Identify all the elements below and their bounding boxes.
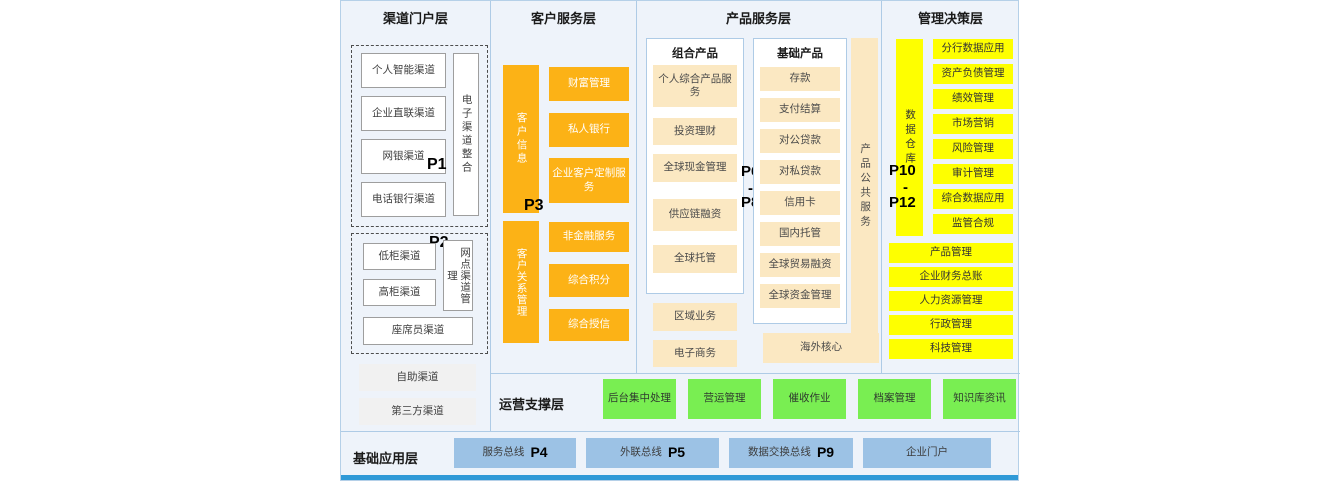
product-box: 国内托管 xyxy=(760,222,840,246)
row-divider xyxy=(341,431,1020,432)
layer-title-operations: 运营支撑层 xyxy=(499,394,589,413)
operations-box: 档案管理 xyxy=(858,379,931,419)
channel-box: 第三方渠道 xyxy=(359,398,476,425)
p-label-dash: - xyxy=(903,180,908,195)
operations-box: 营运管理 xyxy=(688,379,761,419)
layer-title-management: 管理决策层 xyxy=(881,8,1020,27)
product-box: 对公贷款 xyxy=(760,129,840,153)
foundation-box-label: 外联总线 xyxy=(620,446,662,459)
customer-vertical-bar: 客户关系管理 xyxy=(503,221,539,343)
customer-box: 财富管理 xyxy=(549,67,629,101)
management-box: 行政管理 xyxy=(889,315,1013,335)
column-divider xyxy=(490,1,491,431)
product-box: 投资理财 xyxy=(653,118,737,145)
channel-box: 座席员渠道 xyxy=(363,317,473,345)
management-box: 企业财务总账 xyxy=(889,267,1013,287)
channel-box: 低柜渠道 xyxy=(363,243,436,270)
product-box: 海外核心 xyxy=(763,333,879,363)
channel-box: 电话银行渠道 xyxy=(361,182,446,217)
row-divider xyxy=(490,373,1020,374)
product-box: 全球现金管理 xyxy=(653,154,737,182)
layer-title-channel: 渠道门户层 xyxy=(341,8,490,27)
channel-box: 企业直联渠道 xyxy=(361,96,446,131)
product-box: 供应链融资 xyxy=(653,199,737,231)
foundation-box-label: 服务总线 xyxy=(482,446,524,459)
p-label-p4: P4 xyxy=(530,444,547,462)
customer-box: 非金融服务 xyxy=(549,222,629,252)
product-box: 电子商务 xyxy=(653,340,737,367)
bottom-accent-strip xyxy=(341,475,1018,480)
customer-box: 综合授信 xyxy=(549,309,629,341)
product-box: 区域业务 xyxy=(653,303,737,331)
foundation-box: 数据交换总线 P9 xyxy=(729,438,853,468)
customer-vertical-bar: 客户信息 xyxy=(503,65,539,213)
customer-box: 私人银行 xyxy=(549,113,629,147)
foundation-box: 外联总线 P5 xyxy=(586,438,719,468)
management-box: 综合数据应用 xyxy=(933,189,1013,209)
product-box: 全球贸易融资 xyxy=(760,253,840,277)
p-label-p12: P12 xyxy=(889,195,916,210)
operations-box: 知识库资讯 xyxy=(943,379,1016,419)
management-box: 分行数据应用 xyxy=(933,39,1013,59)
product-public-bar: 产品公共服务 xyxy=(851,38,878,334)
management-box: 资产负债管理 xyxy=(933,64,1013,84)
channel-vertical-bar: 网点渠道管理 xyxy=(443,240,473,311)
management-box: 产品管理 xyxy=(889,243,1013,263)
channel-box: 自助渠道 xyxy=(359,364,476,391)
foundation-box: 服务总线 P4 xyxy=(454,438,576,468)
column-divider xyxy=(881,1,882,373)
p-label-p1: P1 xyxy=(427,157,447,173)
product-box: 个人综合产品服务 xyxy=(653,65,737,107)
product-box: 全球资金管理 xyxy=(760,284,840,308)
channel-vertical-bar: 电子渠道整合 xyxy=(453,53,479,216)
foundation-box: 企业门户 xyxy=(863,438,991,468)
p-label-p5: P5 xyxy=(668,444,685,462)
product-box: 信用卡 xyxy=(760,191,840,215)
p-label-p3: P3 xyxy=(524,198,544,214)
product-box: 支付结算 xyxy=(760,98,840,122)
management-box: 监管合规 xyxy=(933,214,1013,234)
customer-box: 企业客户定制服务 xyxy=(549,158,629,203)
foundation-box-label: 数据交换总线 xyxy=(748,446,811,459)
p-label-p10: P10 xyxy=(889,163,916,178)
operations-box: 后台集中处理 xyxy=(603,379,676,419)
operations-box: 催收作业 xyxy=(773,379,846,419)
channel-box: 高柜渠道 xyxy=(363,279,436,306)
layer-title-product: 产品服务层 xyxy=(636,8,881,27)
management-box: 人力资源管理 xyxy=(889,291,1013,311)
product-box: 全球托管 xyxy=(653,245,737,273)
product-box: 存款 xyxy=(760,67,840,91)
management-box: 风险管理 xyxy=(933,139,1013,159)
foundation-box-label: 企业门户 xyxy=(906,446,948,459)
column-divider xyxy=(636,1,637,373)
channel-box: 个人智能渠道 xyxy=(361,53,446,88)
product-box: 对私贷款 xyxy=(760,160,840,184)
management-box: 市场营销 xyxy=(933,114,1013,134)
p-label-p9: P9 xyxy=(817,444,834,462)
architecture-diagram: 渠道门户层 个人智能渠道 企业直联渠道 网银渠道 电话银行渠道 电子渠道整合 P… xyxy=(340,0,1019,481)
management-box: 审计管理 xyxy=(933,164,1013,184)
combo-product-title: 组合产品 xyxy=(646,45,744,61)
customer-box: 综合积分 xyxy=(549,264,629,297)
layer-title-customer: 客户服务层 xyxy=(491,8,636,27)
basic-product-title: 基础产品 xyxy=(753,45,847,61)
management-box: 科技管理 xyxy=(889,339,1013,359)
layer-title-foundation: 基础应用层 xyxy=(353,448,438,467)
management-box: 绩效管理 xyxy=(933,89,1013,109)
